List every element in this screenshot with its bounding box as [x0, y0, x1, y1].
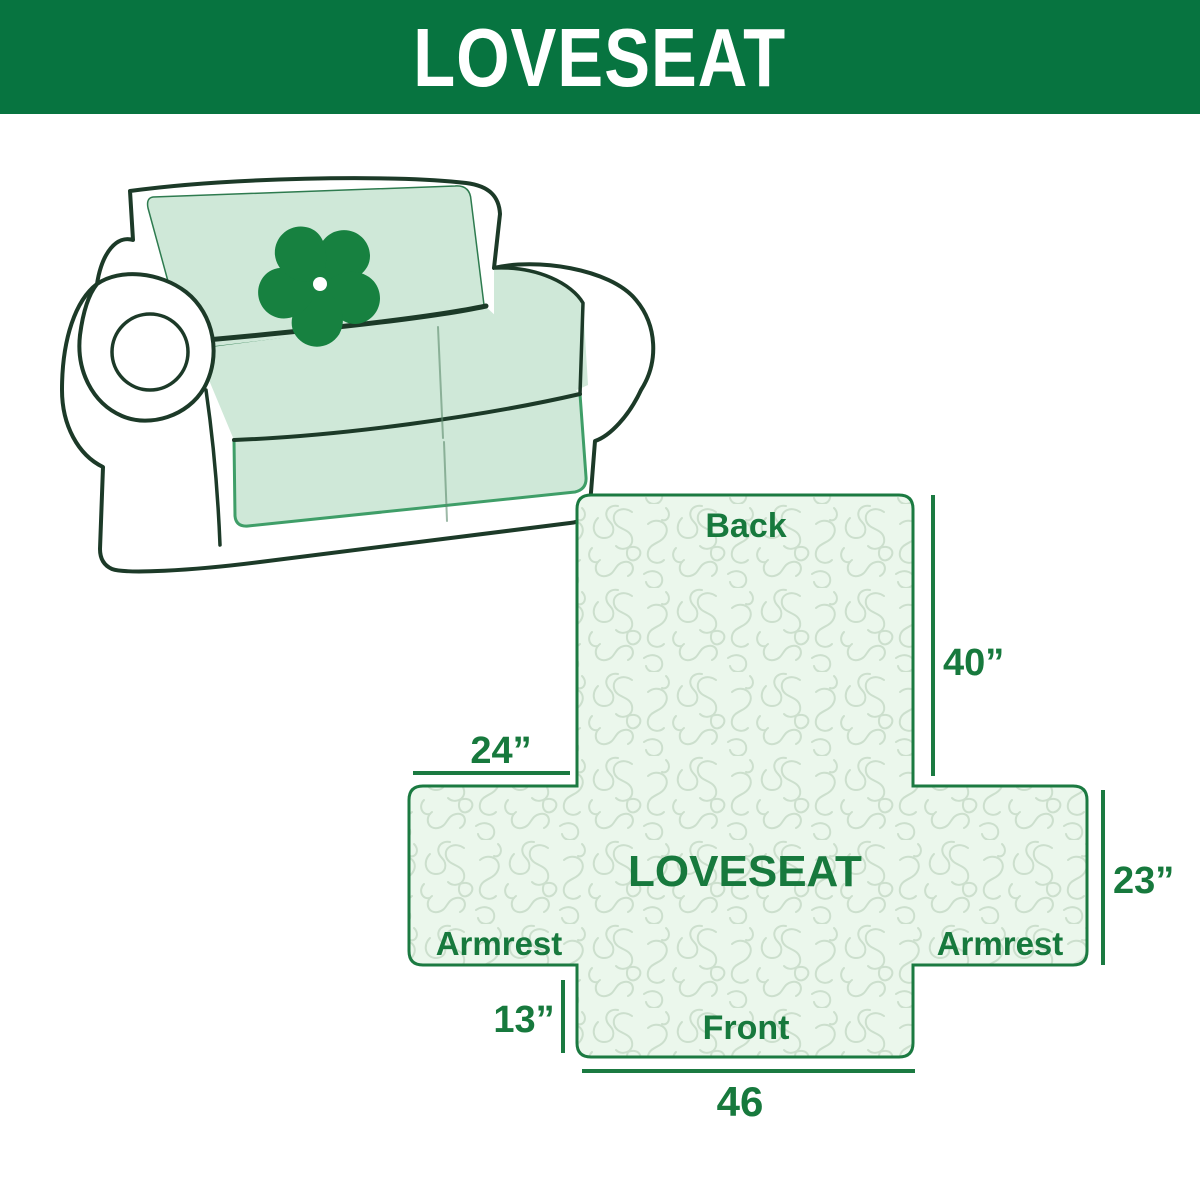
product-infographic: LOVESEAT — [0, 0, 1200, 1200]
cover-cross-shape — [409, 495, 1087, 1057]
dim-armrest-width-label: 24” — [470, 732, 531, 770]
dim-front-width-label: 46 — [717, 1081, 764, 1123]
dim-side-height-label: 23” — [1113, 862, 1174, 900]
diagram-center-label: LOVESEAT — [628, 850, 862, 894]
back-section-label: Back — [705, 509, 786, 543]
front-section-label: Front — [703, 1011, 790, 1045]
dim-front-height-label: 13” — [493, 1001, 554, 1039]
loveseat-illustration — [62, 178, 653, 571]
dim-back-height-label: 40” — [943, 644, 1004, 682]
artwork-layer — [0, 0, 1200, 1200]
armrest-left-label: Armrest — [436, 927, 563, 960]
sofa-left-arm-roll-face — [112, 314, 188, 390]
cover-layout-diagram — [409, 495, 1103, 1071]
armrest-right-label: Armrest — [937, 927, 1064, 960]
